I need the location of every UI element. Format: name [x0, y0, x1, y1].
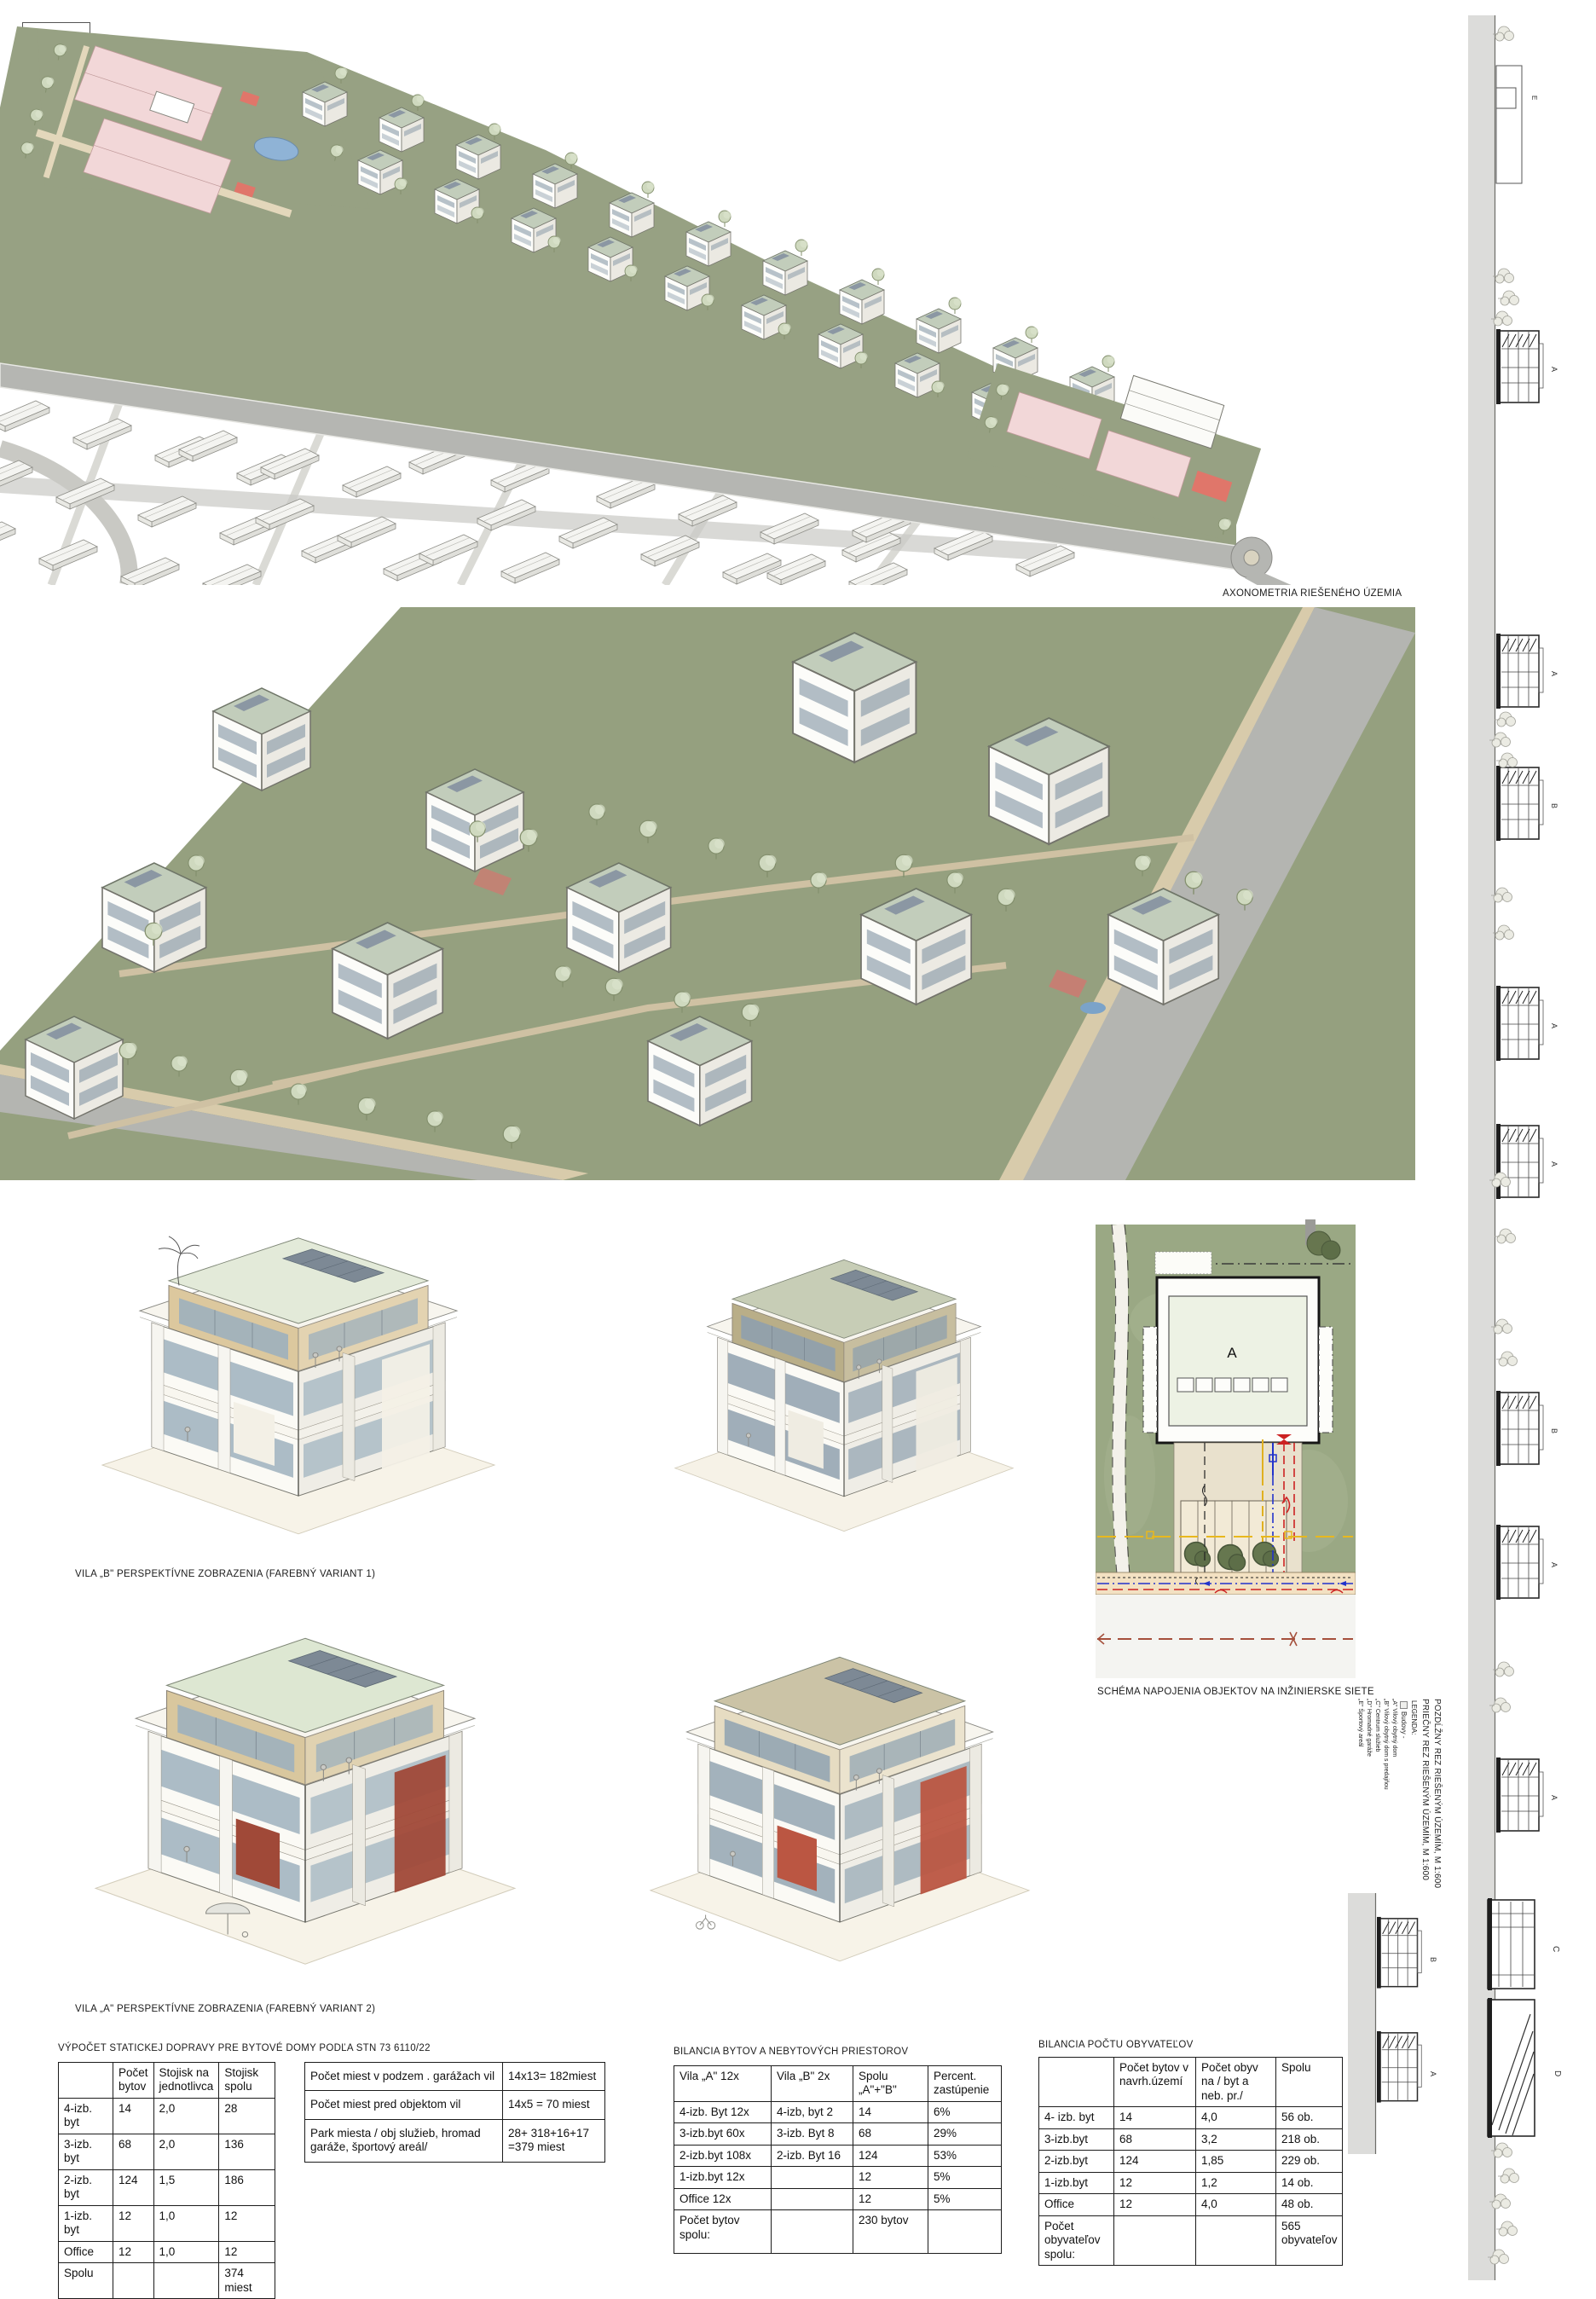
table-row: Office124,048 ob. [1039, 2194, 1343, 2215]
longitudinal-section-strip: E A A B A A B A A C D [1449, 0, 1596, 2280]
table-row: Spolu374 miest [59, 2263, 275, 2299]
centrum-sluzieb-section [1488, 1898, 1535, 1990]
roundabout [1231, 537, 1330, 585]
table-row: 3-izb. byt682,0136 [59, 2134, 275, 2169]
population-table-title: BILANCIA POČTU OBYVATEĽOV [1038, 2040, 1194, 2050]
table-row: Počet bytov Stojisk na jednotlivca Stoji… [59, 2063, 275, 2099]
caption-axonometry: AXONOMETRIA RIEŠENÉHO ÚZEMIA [1223, 588, 1402, 599]
flats-table: Vila „A" 12x Vila „B" 2x Spolu „A"+"B" P… [674, 2065, 1002, 2254]
svg-text:A: A [1550, 671, 1558, 676]
hromadne-garaze-section [1488, 1998, 1535, 2138]
caption-schema: SCHÉMA NAPOJENIA OBJEKTOV NA INŽINIERSKE… [1097, 1687, 1374, 1697]
table-row: Vila „A" 12x Vila „B" 2x Spolu „A"+"B" P… [674, 2066, 1002, 2102]
svg-text:A: A [1429, 2071, 1437, 2076]
table-row: Park miesta / obj služieb, hromad garáže… [305, 2119, 605, 2162]
table-row: 2-izb. byt1241,5186 [59, 2169, 275, 2205]
legend-item-c: „C" Centrum služieb [1373, 1699, 1381, 1910]
table-row: 1-izb.byt121,214 ob. [1039, 2172, 1343, 2193]
section-title-2: PRIEČNY REZ RIEŠENÝM ÚZEMÍM, M 1:600 [1419, 1699, 1431, 1910]
table-row: 2-izb.byt1241,85229 ob. [1039, 2151, 1343, 2172]
utilities-schema: A [1096, 1219, 1356, 1678]
svg-text:A: A [1550, 1023, 1558, 1028]
svg-text:A: A [1550, 1795, 1558, 1800]
foreground [1096, 1595, 1356, 1678]
building-a: A [1157, 1277, 1319, 1443]
sport-areal-section [1496, 66, 1522, 183]
svg-text:A: A [1550, 367, 1558, 372]
cross-road-band [1348, 1893, 1375, 2154]
building-a-label: A [1227, 1345, 1237, 1361]
caption-villa-a: VILA „A" PERSPEKTÍVNE ZOBRAZENIA (FAREBN… [75, 2004, 375, 2014]
parking-table: Počet bytov Stojisk na jednotlivca Stoji… [58, 2062, 275, 2299]
section-title-1: POZDĹŽNY REZ RIEŠENÝM ÚZEMÍM, M 1:600 [1431, 1699, 1443, 1910]
legend-swatch [1400, 1701, 1408, 1709]
table-row: Počet bytov spolu:230 bytov [674, 2210, 1002, 2254]
legend-item-a: „A" Vilový obytný dom [1390, 1699, 1398, 1910]
footpath [1118, 1225, 1125, 1593]
table-row: Počet miest v podzem . garážach vil 14x1… [305, 2063, 605, 2091]
villa-b-render-2 [631, 1218, 1057, 1559]
villa-a-render-1 [41, 1588, 570, 1997]
flats-table-title: BILANCIA BYTOV A NEBYTOVÝCH PRIESTOROV [674, 2047, 908, 2057]
legend-item-e: „E" Športový areál [1356, 1699, 1364, 1910]
table-row: 4-izb. byt142,028 [59, 2098, 275, 2134]
svg-text:A: A [1550, 1161, 1558, 1167]
legend-item-b: „B" Vilový obytný dom s predajňou [1381, 1699, 1390, 1910]
cross-section-strip: B A [1330, 1874, 1441, 2280]
table-row: 3-izb.byt683,2218 ob. [1039, 2128, 1343, 2150]
svg-text:B: B [1429, 1957, 1437, 1962]
svg-text:A: A [1550, 1562, 1558, 1567]
svg-text:B: B [1550, 1428, 1558, 1433]
population-table: Počet bytov v navrh.území Počet obyv na … [1038, 2057, 1343, 2266]
table-row: 4-izb. Byt 12x4-izb, byt 2146% [674, 2101, 1002, 2122]
detail-axonometry [0, 607, 1415, 1180]
table-row: 4- izb. byt144,056 ob. [1039, 2107, 1343, 2128]
parking-table-title: VÝPOČET STATICKEJ DOPRAVY PRE BYTOVÉ DOM… [58, 2043, 431, 2053]
bicycle [697, 1914, 715, 1929]
table-row: 3-izb.byt 60x3-izb. Byt 86829% [674, 2123, 1002, 2145]
legend-item-d: „D" Hromadné garáže [1364, 1699, 1373, 1910]
section-titles-panel: POZDĹŽNY REZ RIEŠENÝM ÚZEMÍM, M 1:600 PR… [1340, 1699, 1443, 1910]
pool [1080, 1002, 1106, 1014]
presentation-board: { "captions": { "axonometria": "AXONOMET… [0, 0, 1596, 2280]
villa-b-render-1 [51, 1192, 546, 1564]
villa-a-render-2 [601, 1610, 1078, 1992]
table-row: 1-izb.byt 12x125% [674, 2167, 1002, 2188]
parking-notes-table: Počet miest v podzem . garážach vil 14x1… [304, 2062, 605, 2163]
masterplan-axonometry [0, 5, 1330, 585]
table-row: Office121,012 [59, 2241, 275, 2262]
table-row: Office 12x125% [674, 2188, 1002, 2209]
section-labels: A A B A A B A A [1550, 367, 1558, 1800]
table-row: Počet bytov v navrh.území Počet obyv na … [1039, 2058, 1343, 2107]
table-row: 2-izb.byt 108x2-izb. Byt 1612453% [674, 2145, 1002, 2166]
table-row: Počet obyvateľov spolu:565 obyvateľov [1039, 2215, 1343, 2265]
legend-title: LEGENDA: [1408, 1700, 1419, 1910]
table-row: Počet miest pred objektom vil 14x5 = 70 … [305, 2091, 605, 2119]
svg-text:B: B [1550, 803, 1558, 808]
legend-buildings: Budovy - [1398, 1700, 1408, 1910]
svg-text:D: D [1553, 2070, 1562, 2076]
section-label: E [1530, 96, 1538, 100]
table-row: 1-izb. byt121,012 [59, 2205, 275, 2241]
svg-text:C: C [1551, 1946, 1560, 1952]
caption-villa-b: VILA „B" PERSPEKTÍVNE ZOBRAZENIA (FAREBN… [75, 1569, 375, 1579]
